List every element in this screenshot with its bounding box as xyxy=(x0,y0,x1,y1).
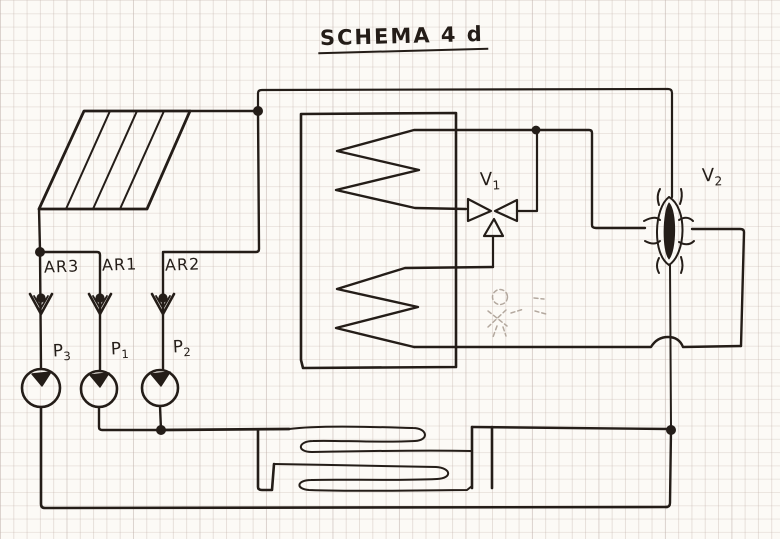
junction-dot xyxy=(156,425,166,435)
v2-left-feed-pipe xyxy=(537,130,645,228)
schematic-page: SCHEMA 4 d AR3 AR1 AR2 P3 P1 P2 V1 V2 xyxy=(0,0,780,539)
bottom-piping xyxy=(41,406,667,508)
three-way-valve-v1-icon xyxy=(468,132,537,267)
schema-title: SCHEMA 4 d xyxy=(318,24,488,54)
label-v1: V1 xyxy=(480,171,501,193)
junction-dot xyxy=(666,425,676,435)
ghost-valve-sketch xyxy=(488,290,546,338)
pump-p3-icon xyxy=(22,369,60,407)
label-p2: P2 xyxy=(172,339,191,360)
junction-dot xyxy=(532,126,541,135)
pump-p2-icon xyxy=(142,370,178,406)
label-v2: V2 xyxy=(702,167,723,189)
label-ar1: AR1 xyxy=(102,256,138,273)
pump-p1-icon xyxy=(81,371,117,407)
storage-tank-icon xyxy=(301,113,535,368)
solar-collector-icon xyxy=(39,111,190,209)
label-p1: P1 xyxy=(110,341,129,362)
v2-right-feed-pipe xyxy=(414,229,744,347)
floor-serpentine-icon xyxy=(258,427,669,491)
label-ar2: AR2 xyxy=(165,256,201,273)
junction-dot xyxy=(253,106,263,116)
label-p3: P3 xyxy=(52,343,71,364)
junction-dot xyxy=(35,247,45,257)
label-ar3: AR3 xyxy=(44,258,80,275)
